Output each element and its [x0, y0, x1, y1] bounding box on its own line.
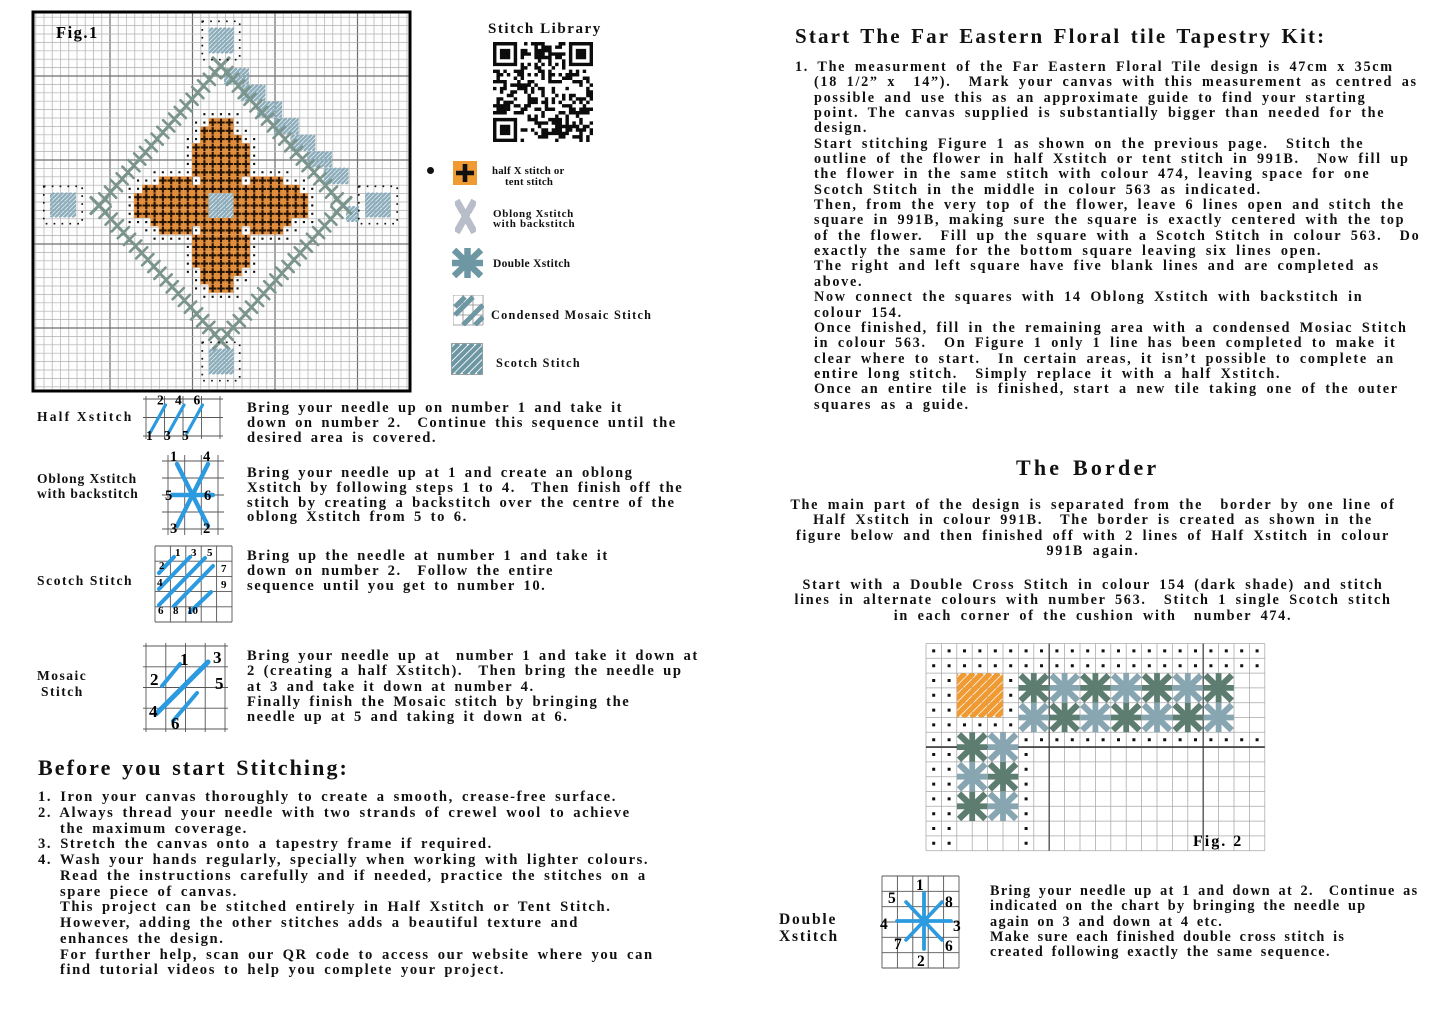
svg-text:8: 8	[945, 894, 953, 911]
svg-text:2: 2	[150, 670, 159, 689]
svg-text:7: 7	[221, 563, 227, 575]
svg-text:3: 3	[953, 918, 961, 935]
svg-text:2: 2	[159, 560, 165, 572]
svg-text:2: 2	[203, 521, 210, 537]
svg-text:1: 1	[180, 650, 189, 669]
svg-text:6: 6	[194, 393, 201, 408]
svg-text:6: 6	[945, 938, 953, 955]
svg-text:3: 3	[170, 521, 177, 537]
svg-text:3: 3	[191, 547, 197, 559]
svg-text:4: 4	[880, 916, 888, 933]
svg-text:5: 5	[182, 428, 189, 443]
svg-text:10: 10	[187, 605, 199, 617]
svg-text:Fig.1: Fig.1	[56, 23, 99, 42]
svg-text:4: 4	[149, 702, 158, 721]
svg-text:4: 4	[175, 393, 182, 408]
svg-text:2: 2	[917, 953, 925, 970]
svg-text:6: 6	[204, 488, 211, 504]
svg-text:1: 1	[916, 877, 924, 894]
svg-text:3: 3	[213, 648, 222, 667]
svg-text:4: 4	[157, 577, 163, 589]
svg-text:1: 1	[146, 428, 153, 443]
svg-text:8: 8	[173, 605, 179, 617]
svg-text:6: 6	[171, 714, 180, 733]
svg-text:5: 5	[888, 890, 896, 907]
svg-text:5: 5	[207, 547, 213, 559]
svg-text:1: 1	[170, 449, 177, 465]
svg-text:2: 2	[157, 393, 164, 408]
svg-text:9: 9	[221, 579, 227, 591]
svg-text:6: 6	[158, 605, 164, 617]
svg-text:3: 3	[164, 428, 171, 443]
svg-text:Fig. 2: Fig. 2	[1193, 833, 1243, 850]
svg-text:5: 5	[215, 674, 224, 693]
svg-text:7: 7	[894, 936, 902, 953]
svg-text:5: 5	[165, 488, 172, 504]
svg-text:4: 4	[203, 449, 210, 465]
svg-text:1: 1	[175, 547, 181, 559]
